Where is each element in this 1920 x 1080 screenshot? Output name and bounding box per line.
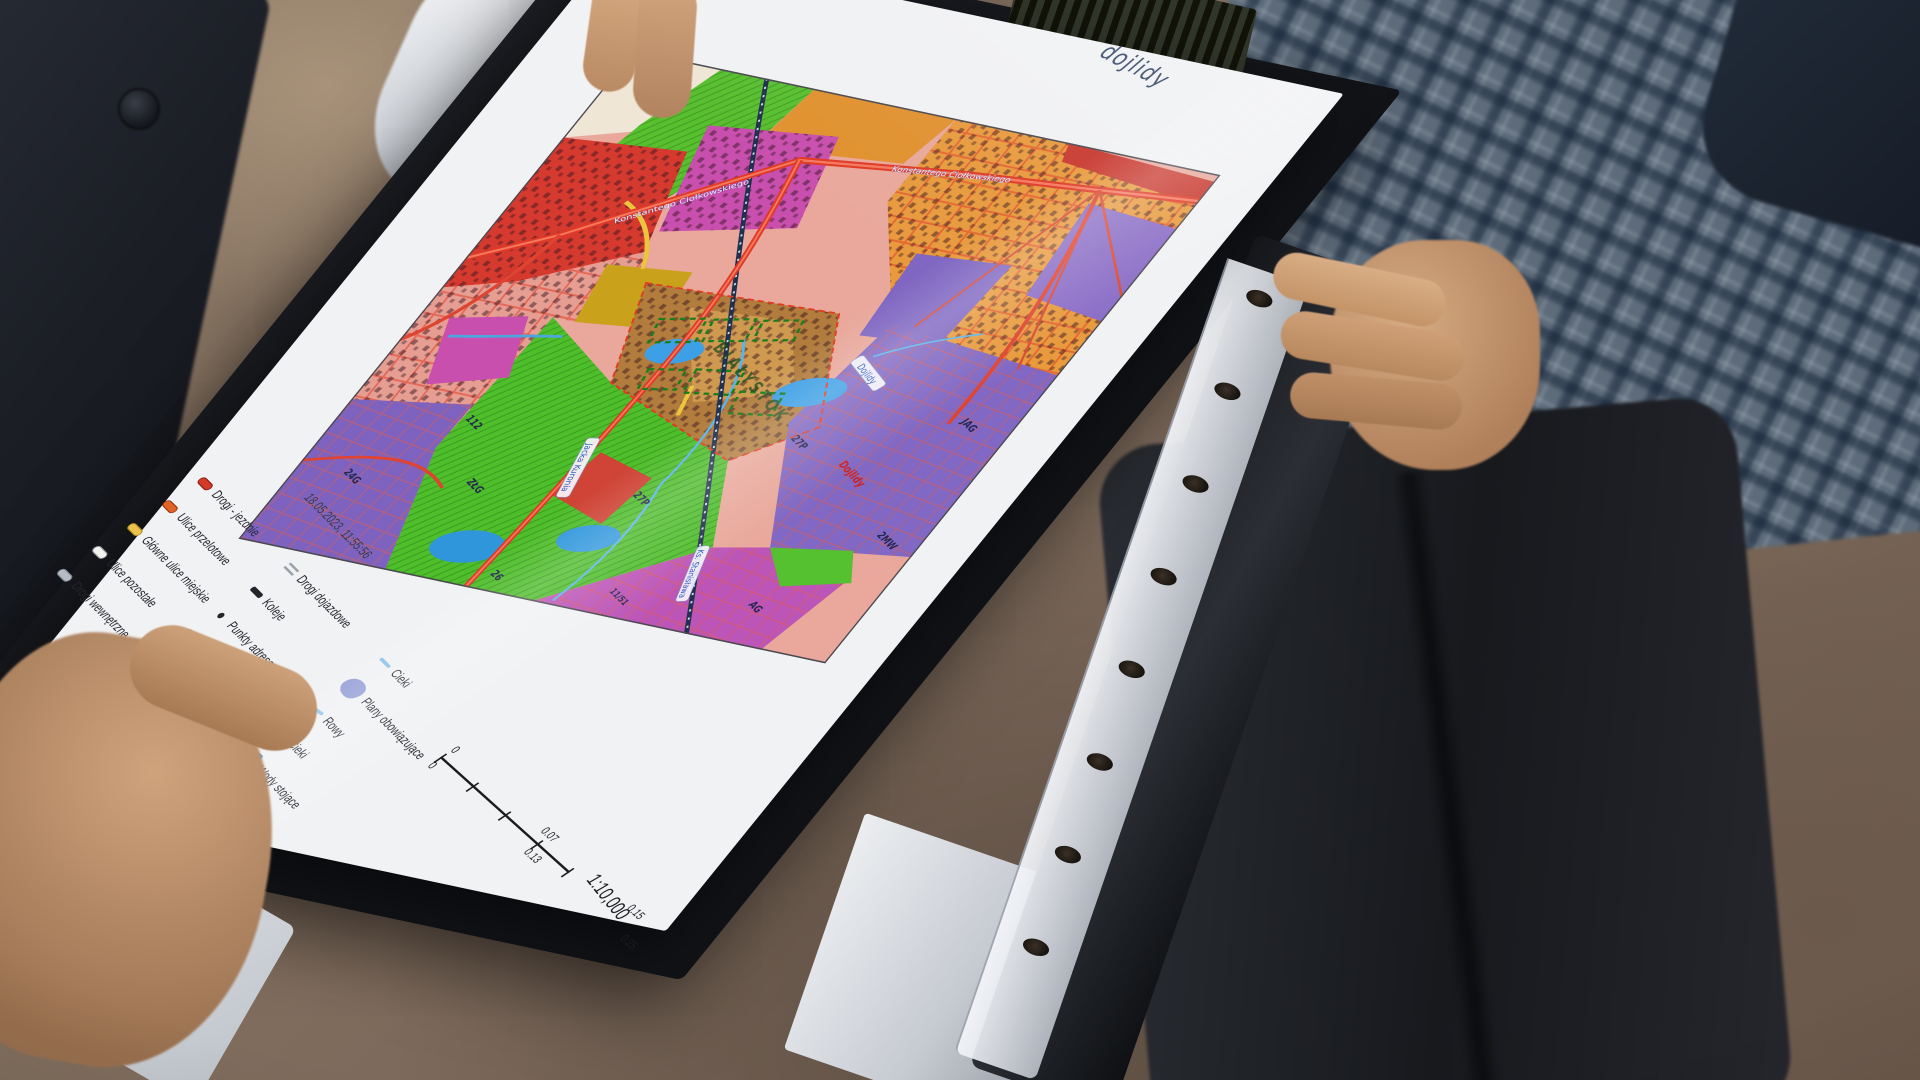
scalebar-line (440, 756, 571, 873)
orange-line-icon (161, 498, 180, 514)
gray-line-icon (56, 567, 75, 583)
legend-label: Rowy (319, 715, 348, 740)
legend-label: Koleje (259, 597, 290, 624)
punch-hole (1180, 472, 1211, 496)
address-point-icon (217, 611, 227, 619)
yellow-line-icon (126, 521, 145, 537)
punch-hole (1084, 750, 1115, 774)
lightblue-line-icon (379, 657, 391, 668)
punch-hole (1116, 657, 1147, 681)
punch-hole (1244, 287, 1275, 311)
punch-hole (1212, 379, 1243, 403)
photo-scene: dojlidy (0, 0, 1920, 1080)
road-red-line-icon (196, 476, 215, 492)
white-line-icon (91, 544, 110, 560)
suit-button (118, 88, 160, 130)
thin-double-line-icon (283, 562, 299, 575)
punch-hole (1148, 565, 1179, 589)
legend-label: Cieki (387, 667, 414, 690)
punch-hole (1053, 843, 1084, 867)
punch-hole (1021, 935, 1052, 959)
railway-dash-icon (249, 586, 263, 599)
